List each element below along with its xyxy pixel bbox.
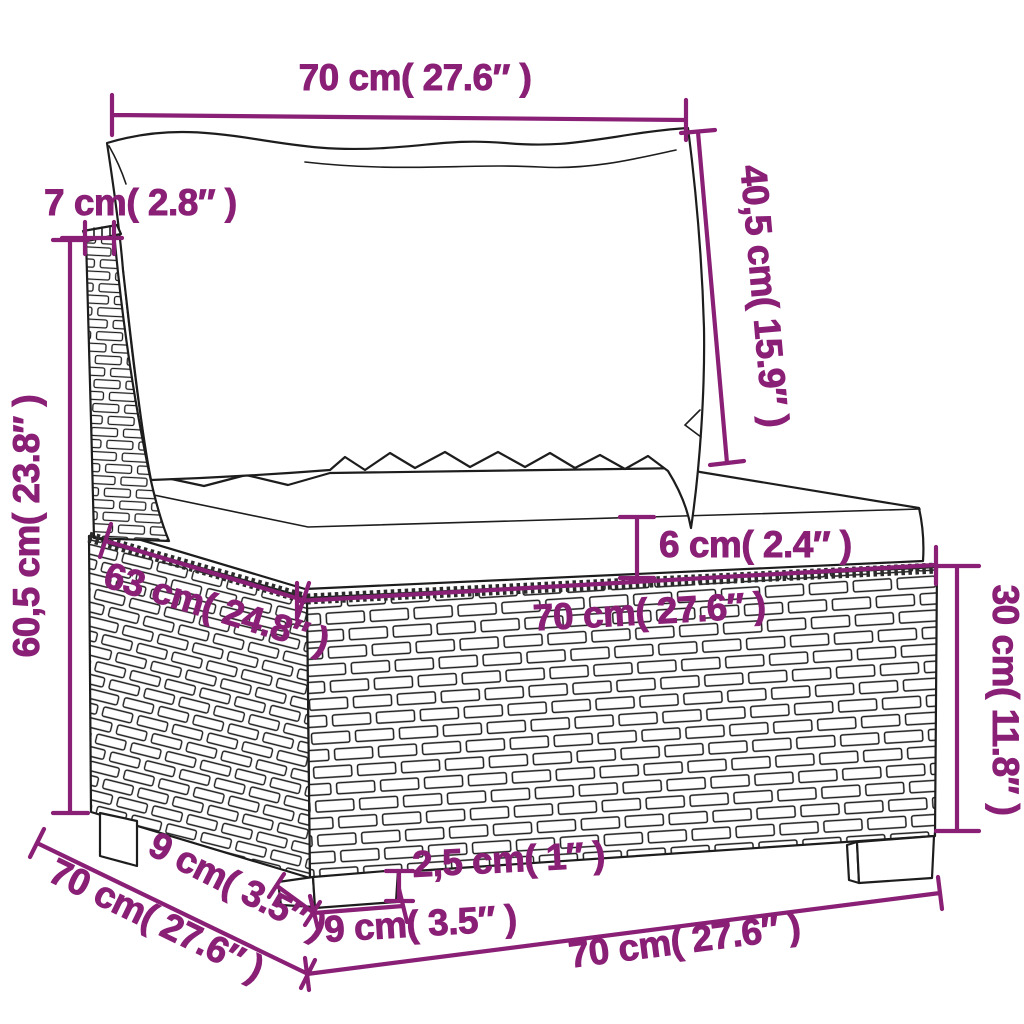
dim-leg-height-label: 2,5 cm( 1″ ) [411,834,606,885]
dim-base-height-label: 30 cm( 11.8″ ) [985,585,1024,816]
sofa-dimension-diagram: 70 cm( 27.6″ ) 40,5 cm( 15.9″ ) 7 cm( 2.… [0,0,1024,1024]
leg-right [857,836,934,883]
dim-leg-height: 2,5 cm( 1″ ) [386,834,606,901]
dim-back-width: 70 cm( 27.6″ ) [112,57,686,140]
dim-total-height-label: 60,5 cm( 23.8″ ) [6,395,47,658]
dim-seat-cushion-thickness-label: 6 cm( 2.4″ ) [659,524,852,565]
dim-base-height: 30 cm( 11.8″ ) [936,566,1024,831]
leg-back-left [100,813,137,866]
dim-back-width-label: 70 cm( 27.6″ ) [299,57,532,98]
dim-total-height: 60,5 cm( 23.8″ ) [6,240,88,813]
dim-back-frame-thickness-label: 7 cm( 2.8″ ) [44,182,237,223]
diagram-svg: 70 cm( 27.6″ ) 40,5 cm( 15.9″ ) 7 cm( 2.… [0,0,1024,1024]
dim-back-cushion-height-label: 40,5 cm( 15.9″ ) [733,163,797,428]
dim-bottom-width-label: 70 cm( 27.6″ ) [566,905,802,975]
